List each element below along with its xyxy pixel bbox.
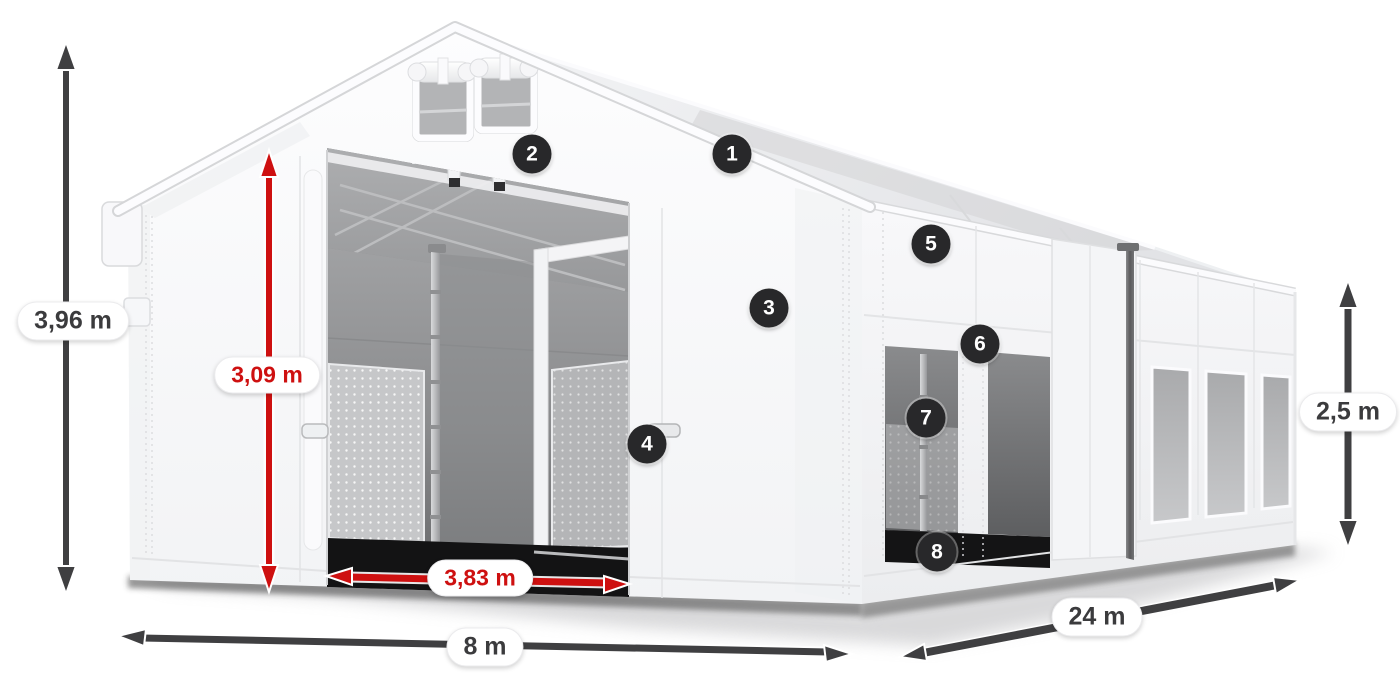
dimension-label-entrance-height: 3,09 m [214, 357, 320, 394]
dimension-label-side-length: 24 m [1052, 598, 1143, 637]
callout-badge-4: 4 [628, 425, 667, 464]
dimension-label-front-width: 8 m [446, 628, 523, 667]
callout-badge-7: 7 [907, 399, 946, 438]
tent-dimensions-figure: 3,96 m 3,09 m 3,83 m 8 m 24 m 2,5 m 1 2 … [0, 0, 1400, 700]
callout-badge-3: 3 [750, 289, 789, 328]
tent-3d-render [0, 0, 1400, 700]
dimension-label-side-wall-height: 2,5 m [1299, 393, 1397, 432]
dimension-label-total-height: 3,96 m [17, 302, 129, 341]
side-windows [1152, 367, 1290, 523]
callout-badge-8: 8 [918, 533, 957, 572]
vent-right [470, 54, 538, 134]
entrance-opening [300, 148, 680, 598]
sliding-door [1052, 239, 1139, 560]
dimension-label-entrance-width: 3,83 m [427, 560, 533, 597]
vent-left [408, 58, 476, 142]
callout-badge-1: 1 [713, 135, 752, 174]
callout-badge-6: 6 [961, 325, 1000, 364]
roof-vents [408, 54, 538, 142]
callout-badge-5: 5 [912, 225, 951, 264]
callout-badge-2: 2 [513, 135, 552, 174]
